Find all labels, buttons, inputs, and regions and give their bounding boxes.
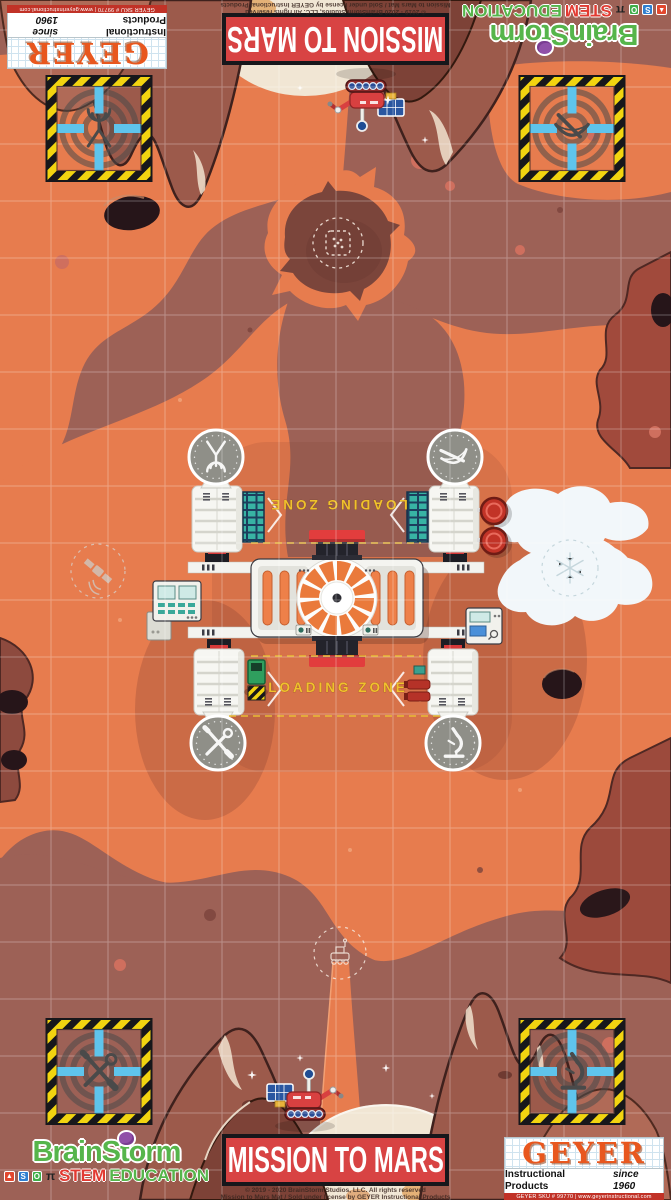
brainstorm-logo-bottom: BrainStorm ▲ S O π STEM EDUCATION [4,1138,209,1186]
pi-icon: π [615,5,626,16]
mat-artwork: LOADING ZONE LOADING ZONE [0,0,671,1200]
stem-chip-icon: O [32,1171,43,1182]
mission-to-mars-mat: LOADING ZONE LOADING ZONE [0,0,671,1200]
stem-label: STEM [59,1166,106,1186]
module-top-left [192,486,242,552]
solar-array-left [243,492,264,542]
geyer-wordmark-box: GEYER [504,1137,664,1169]
brainstorm-wordmark: BrainStorm [491,19,639,48]
loading-zone-label-top: LOADING ZONE [268,497,408,512]
education-label: EDUCATION [462,0,562,20]
geyer-wordmark-box: GEYER [7,37,167,69]
geyer-logo-bottom: GEYER Instructional Products since 1960 … [504,1137,664,1200]
module-top-right [429,486,479,552]
brain-icon [117,1130,136,1147]
stem-chip-icon: ▲ [656,5,667,16]
airlock-top [309,530,365,560]
module-bottom-left [194,649,244,715]
geyer-tagline: Instructional Products since 1960 [7,13,167,37]
airlock-bottom [309,636,365,667]
geyer-tagline: Instructional Products since 1960 [504,1169,664,1193]
education-label: EDUCATION [109,1166,209,1186]
stem-chip-icon: ▲ [4,1171,15,1182]
geyer-sku-bar: GEYER SKU # 99770 | www.geyerinstruction… [7,5,167,13]
stem-chip-icon: S [643,5,654,16]
loader-vehicle [244,660,268,700]
geyer-wordmark: GEYER [25,36,149,70]
control-panel-right [466,608,502,644]
solar-array-right [407,492,428,542]
geyer-wordmark: GEYER [522,1136,646,1170]
mission-title: MISSION TO MARS [227,18,443,60]
pi-icon: π [45,1171,56,1182]
mission-banner-bottom: MISSION TO MARS [222,1134,449,1186]
mission-banner-top: MISSION TO MARS [222,13,449,65]
brainstorm-logo-top: BrainStorm ▲ S O π STEM EDUCATION [462,0,667,48]
stem-label: STEM [565,0,612,20]
brainstorm-wordmark: BrainStorm [33,1138,181,1167]
module-bottom-right [428,649,478,715]
mission-title: MISSION TO MARS [227,1139,443,1181]
stem-chip-icon: O [629,5,640,16]
stem-chip-icon: S [18,1171,29,1182]
loading-zone-label-bottom: LOADING ZONE [268,680,408,695]
geyer-sku-bar: GEYER SKU # 99770 | www.geyerinstruction… [504,1193,664,1200]
geyer-logo-top: GEYER Instructional Products since 1960 … [7,5,167,69]
